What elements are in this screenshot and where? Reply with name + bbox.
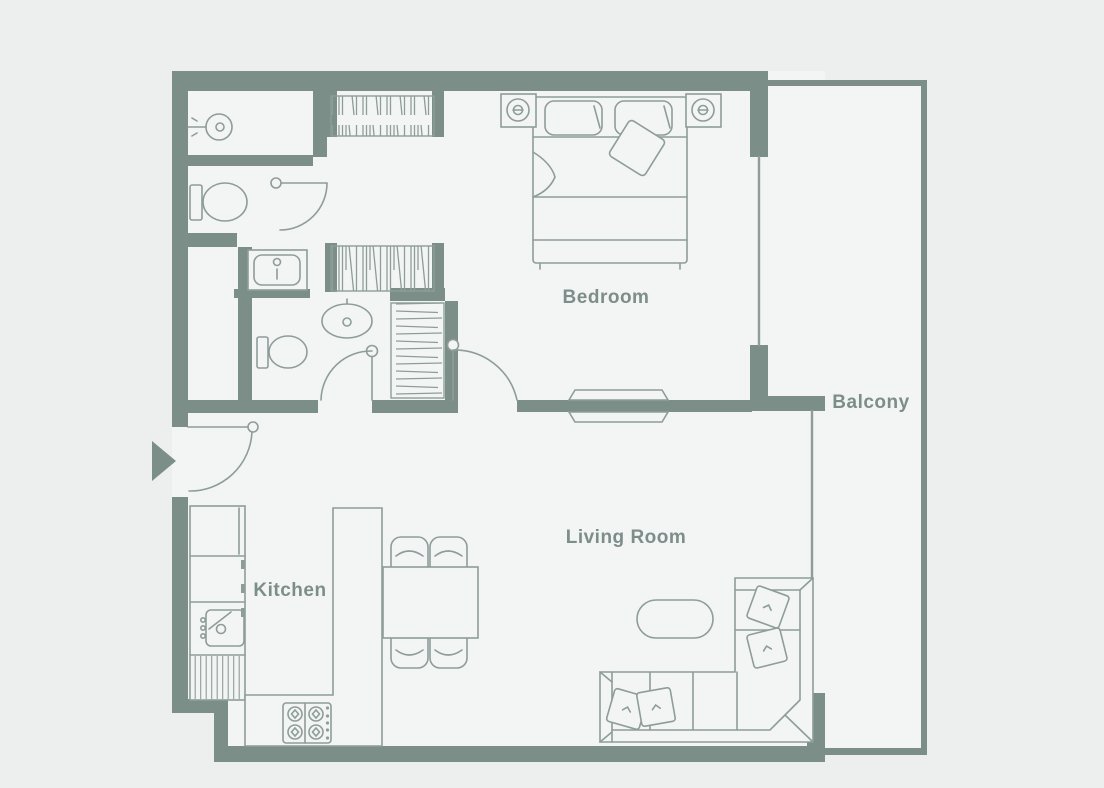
floor-plan-page: Bedroom Kitchen Living Room Balcony [0, 0, 1104, 788]
kitchen-counter-icon [190, 506, 245, 700]
stove-icon [283, 703, 331, 743]
wardrobe-bottom-icon [331, 246, 434, 291]
double-bed-icon [533, 97, 687, 269]
room-label-bedroom: Bedroom [563, 287, 650, 308]
coffee-table-icon [637, 600, 713, 638]
toilet2-icon [257, 336, 307, 368]
linen-closet-icon [391, 303, 444, 398]
nightstand-left-icon [501, 94, 536, 127]
vanity-sink-icon [248, 250, 307, 290]
dining-table-icon [383, 567, 478, 638]
floor-plan-svg: Bedroom Kitchen Living Room Balcony [0, 0, 1104, 788]
room-label-kitchen: Kitchen [253, 580, 326, 601]
room-label-living-room: Living Room [566, 527, 687, 548]
sofa-pillow-icon [746, 627, 787, 668]
wardrobe-top-icon [331, 96, 434, 136]
nightstand-right-icon [686, 94, 721, 127]
dining-set [383, 537, 478, 668]
room-label-balcony: Balcony [832, 392, 909, 413]
toilet-icon [190, 183, 247, 221]
sofa-pillow-icon [636, 687, 675, 726]
